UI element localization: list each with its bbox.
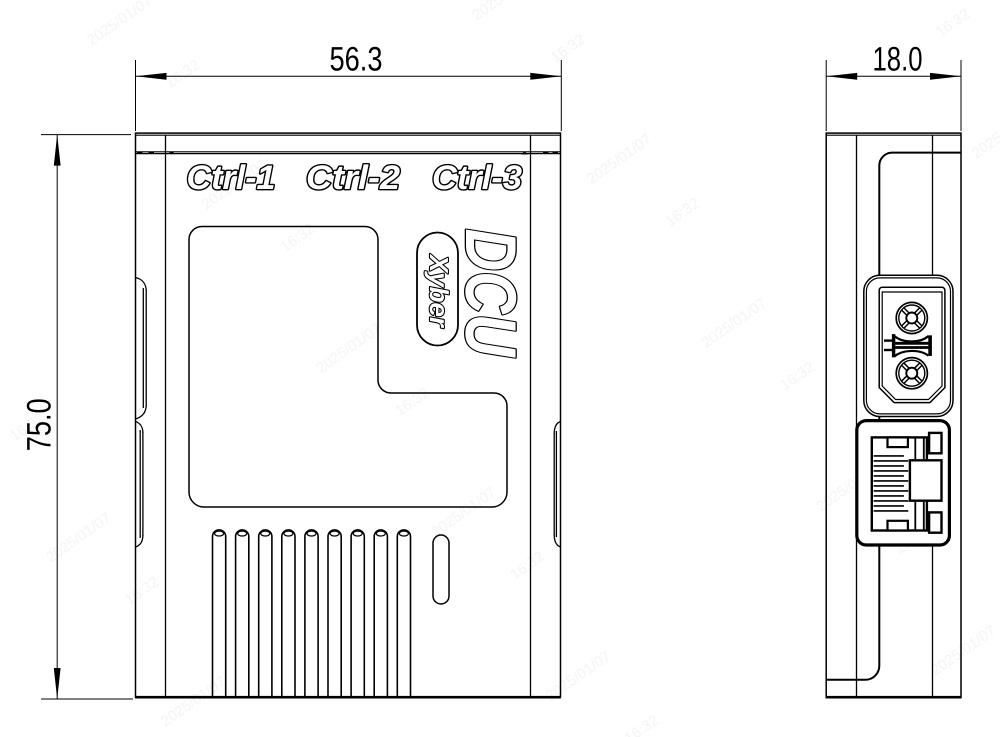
svg-text:18.0: 18.0	[873, 41, 923, 79]
svg-text:75.0: 75.0	[21, 398, 59, 451]
svg-text:56.3: 56.3	[330, 41, 383, 79]
